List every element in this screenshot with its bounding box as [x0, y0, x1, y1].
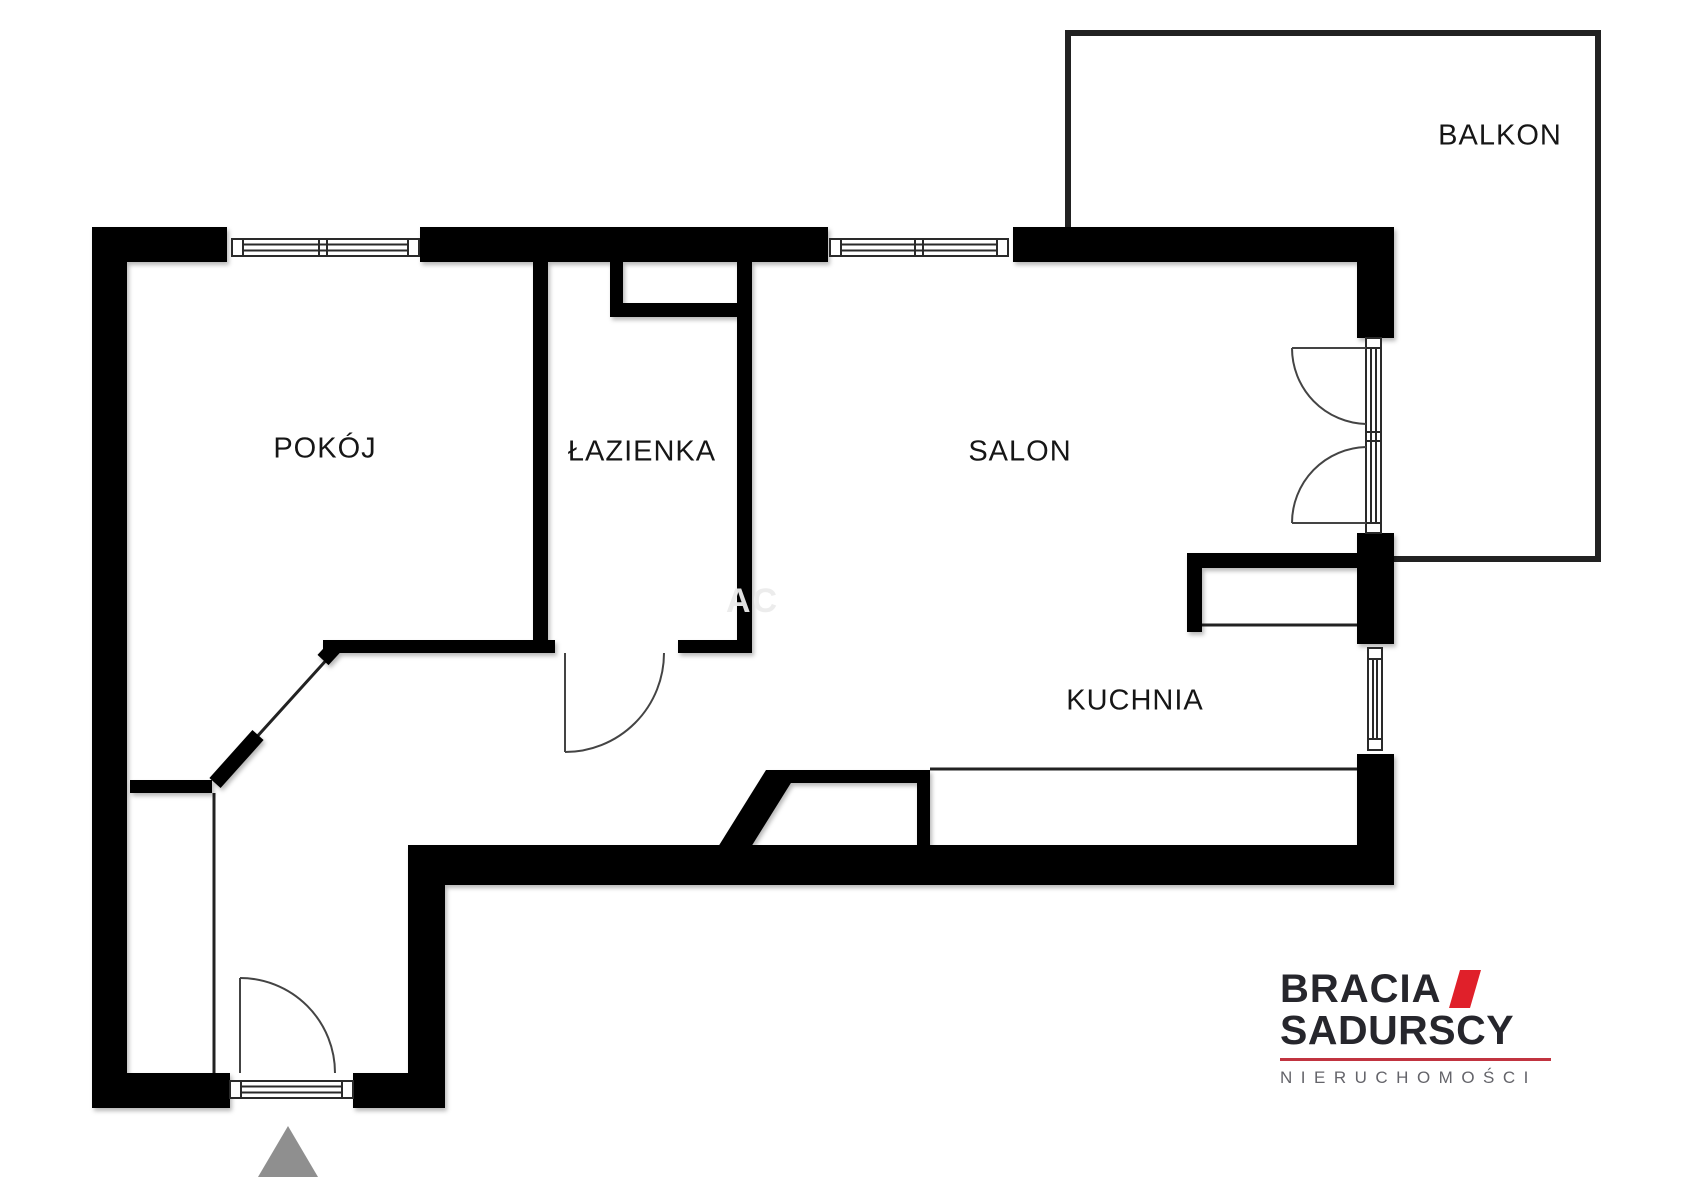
- watermark-text: AC: [726, 582, 779, 621]
- right-wall-lower: [1357, 754, 1394, 845]
- room-label-balkon: BALKON: [1438, 120, 1562, 153]
- window-symbols: [230, 239, 1382, 1098]
- pokoj-diagonal-wall-upper: [323, 647, 335, 660]
- main-bottom-wall: [408, 845, 1394, 885]
- logo-divider-rule: [1280, 1058, 1551, 1061]
- bathroom-door: [565, 653, 664, 752]
- bottom-left-wall-a: [127, 1073, 230, 1108]
- pokoj-door-leaf-line: [254, 656, 330, 740]
- bathroom-left-wall: [533, 262, 548, 653]
- hall-stub-wall: [130, 780, 212, 793]
- floorplan-page: { "plan": { "rooms": [ {"name": "pokoj",…: [0, 0, 1697, 1200]
- balcony-outline: [1068, 33, 1598, 559]
- logo-brand-top-text: BRACIA: [1280, 969, 1442, 1009]
- logo-mark-icon: [1449, 970, 1481, 1008]
- kitchen-partition-arm: [1187, 553, 1202, 632]
- top-wall-right: [1013, 227, 1394, 262]
- entrance-door-threshold: [230, 1081, 353, 1098]
- pokoj-window: [232, 239, 419, 256]
- logo-top-row: BRACIA: [1280, 969, 1590, 1009]
- room-label-kuchnia: KUCHNIA: [1066, 685, 1204, 718]
- shaft-left-wall: [610, 262, 623, 310]
- balcony-door-upper-leaf: [1292, 348, 1366, 424]
- room-label-lazienka: ŁAZIENKA: [568, 436, 716, 469]
- pokoj-diagonal-wall-lower: [215, 735, 258, 783]
- entrance-door: [240, 978, 335, 1073]
- kitchen-window: [1368, 648, 1382, 750]
- mid-horizontal-wall: [766, 770, 930, 783]
- mid-vertical-wall: [917, 783, 930, 847]
- right-wall-upper: [1357, 262, 1394, 338]
- pokoj-bottom-wall-left: [323, 640, 555, 653]
- agency-logo: BRACIA SADURSCY NIERUCHOMOŚCI: [1280, 969, 1590, 1088]
- room-label-salon: SALON: [968, 436, 1071, 469]
- logo-tagline-text: NIERUCHOMOŚCI: [1280, 1068, 1590, 1088]
- right-wall-middle: [1357, 533, 1394, 644]
- logo-brand-bottom-text: SADURSCY: [1280, 1009, 1590, 1052]
- walls: [92, 227, 1394, 1108]
- salon-window: [830, 239, 1008, 256]
- room-label-pokoj: POKÓJ: [273, 433, 376, 466]
- balcony-door-lower-leaf: [1292, 447, 1366, 523]
- balcony-door-frame: [1366, 338, 1381, 533]
- shaft-bottom-wall: [610, 303, 752, 317]
- top-wall-middle: [420, 227, 828, 262]
- left-wall: [92, 227, 127, 1108]
- entrance-marker-triangle: [258, 1126, 318, 1177]
- kitchen-partition-top: [1187, 553, 1357, 568]
